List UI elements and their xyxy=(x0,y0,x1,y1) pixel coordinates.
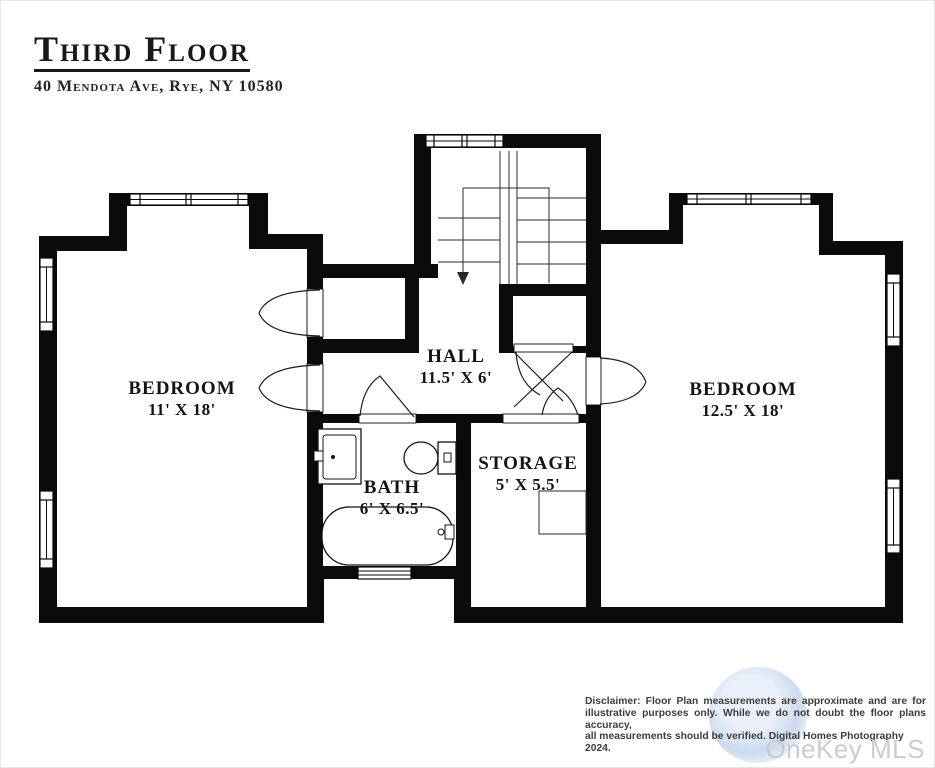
room-label-hall: HALL 11.5' X 6' xyxy=(420,346,493,388)
room-dimensions: 5' X 5.5' xyxy=(478,474,578,495)
room-dimensions: 11' X 18' xyxy=(128,399,235,420)
window xyxy=(40,491,53,568)
wall-door-jamb-left xyxy=(307,337,323,365)
wall-closet-center-left xyxy=(499,296,513,353)
wall-bottom-left xyxy=(39,607,324,623)
wall-stairwell-left xyxy=(414,134,431,278)
door-arc-bath xyxy=(360,376,414,417)
room-dimensions: 12.5' X 18' xyxy=(689,400,796,421)
window xyxy=(358,567,411,579)
disclaimer-line: Disclaimer: Floor Plan measurements are … xyxy=(585,696,926,708)
room-name: HALL xyxy=(420,346,493,367)
doorway xyxy=(359,414,416,423)
wall-stairwell-bottom xyxy=(499,284,588,296)
wall-bedroomR-top-left xyxy=(586,230,683,244)
staircase xyxy=(438,151,586,285)
doorway xyxy=(307,364,323,412)
room-label-storage: STORAGE 5' X 5.5' xyxy=(478,453,578,495)
window xyxy=(887,274,900,346)
wall-dormer-right-r xyxy=(819,193,833,244)
room-name: BEDROOM xyxy=(128,378,235,399)
wall-closet-left-bottom xyxy=(307,339,419,353)
room-name: BEDROOM xyxy=(689,379,796,400)
window xyxy=(687,194,811,204)
wall-connector-left xyxy=(307,234,323,291)
window xyxy=(426,135,503,147)
wall-closet-center-stub-r xyxy=(571,346,588,353)
disclaimer-line: illustrative purposes only. While we do … xyxy=(585,708,926,732)
wall-center-divider-upper xyxy=(586,244,601,357)
wall-bottom-right xyxy=(454,607,903,623)
doorway xyxy=(503,414,579,423)
door-arc-bedroom-right xyxy=(600,358,646,404)
wall-closet-center-stub-l xyxy=(499,346,516,353)
room-name: BATH xyxy=(360,477,424,498)
window xyxy=(40,258,53,331)
doorway xyxy=(307,289,323,337)
stair-rail-outline xyxy=(463,188,549,283)
window xyxy=(130,194,248,205)
toilet xyxy=(404,442,456,474)
mls-watermark: OneKey MLS xyxy=(765,734,925,765)
floor-plan-page: Third Floor 40 Mendota Ave, Rye, NY 1058… xyxy=(0,0,935,768)
sink-vanity xyxy=(314,429,361,484)
doorway xyxy=(586,357,601,405)
room-label-bedroom-right: BEDROOM 12.5' X 18' xyxy=(689,379,796,421)
storage-chase-outline xyxy=(539,491,586,534)
doorway xyxy=(514,344,573,352)
room-label-bedroom-left: BEDROOM 11' X 18' xyxy=(128,378,235,420)
stairs-down-arrow-icon xyxy=(457,272,469,285)
room-dimensions: 11.5' X 6' xyxy=(420,367,493,388)
room-dimensions: 6' X 6.5' xyxy=(360,498,424,519)
wall-stairwell-right xyxy=(586,134,601,244)
wall-center-divider-lower xyxy=(586,405,601,623)
window xyxy=(887,479,900,553)
room-label-bath: BATH 6' X 6.5' xyxy=(360,477,424,519)
wall-bath-top-l xyxy=(307,414,359,423)
door-bifold-closet-center xyxy=(514,352,578,415)
room-name: STORAGE xyxy=(478,453,578,474)
